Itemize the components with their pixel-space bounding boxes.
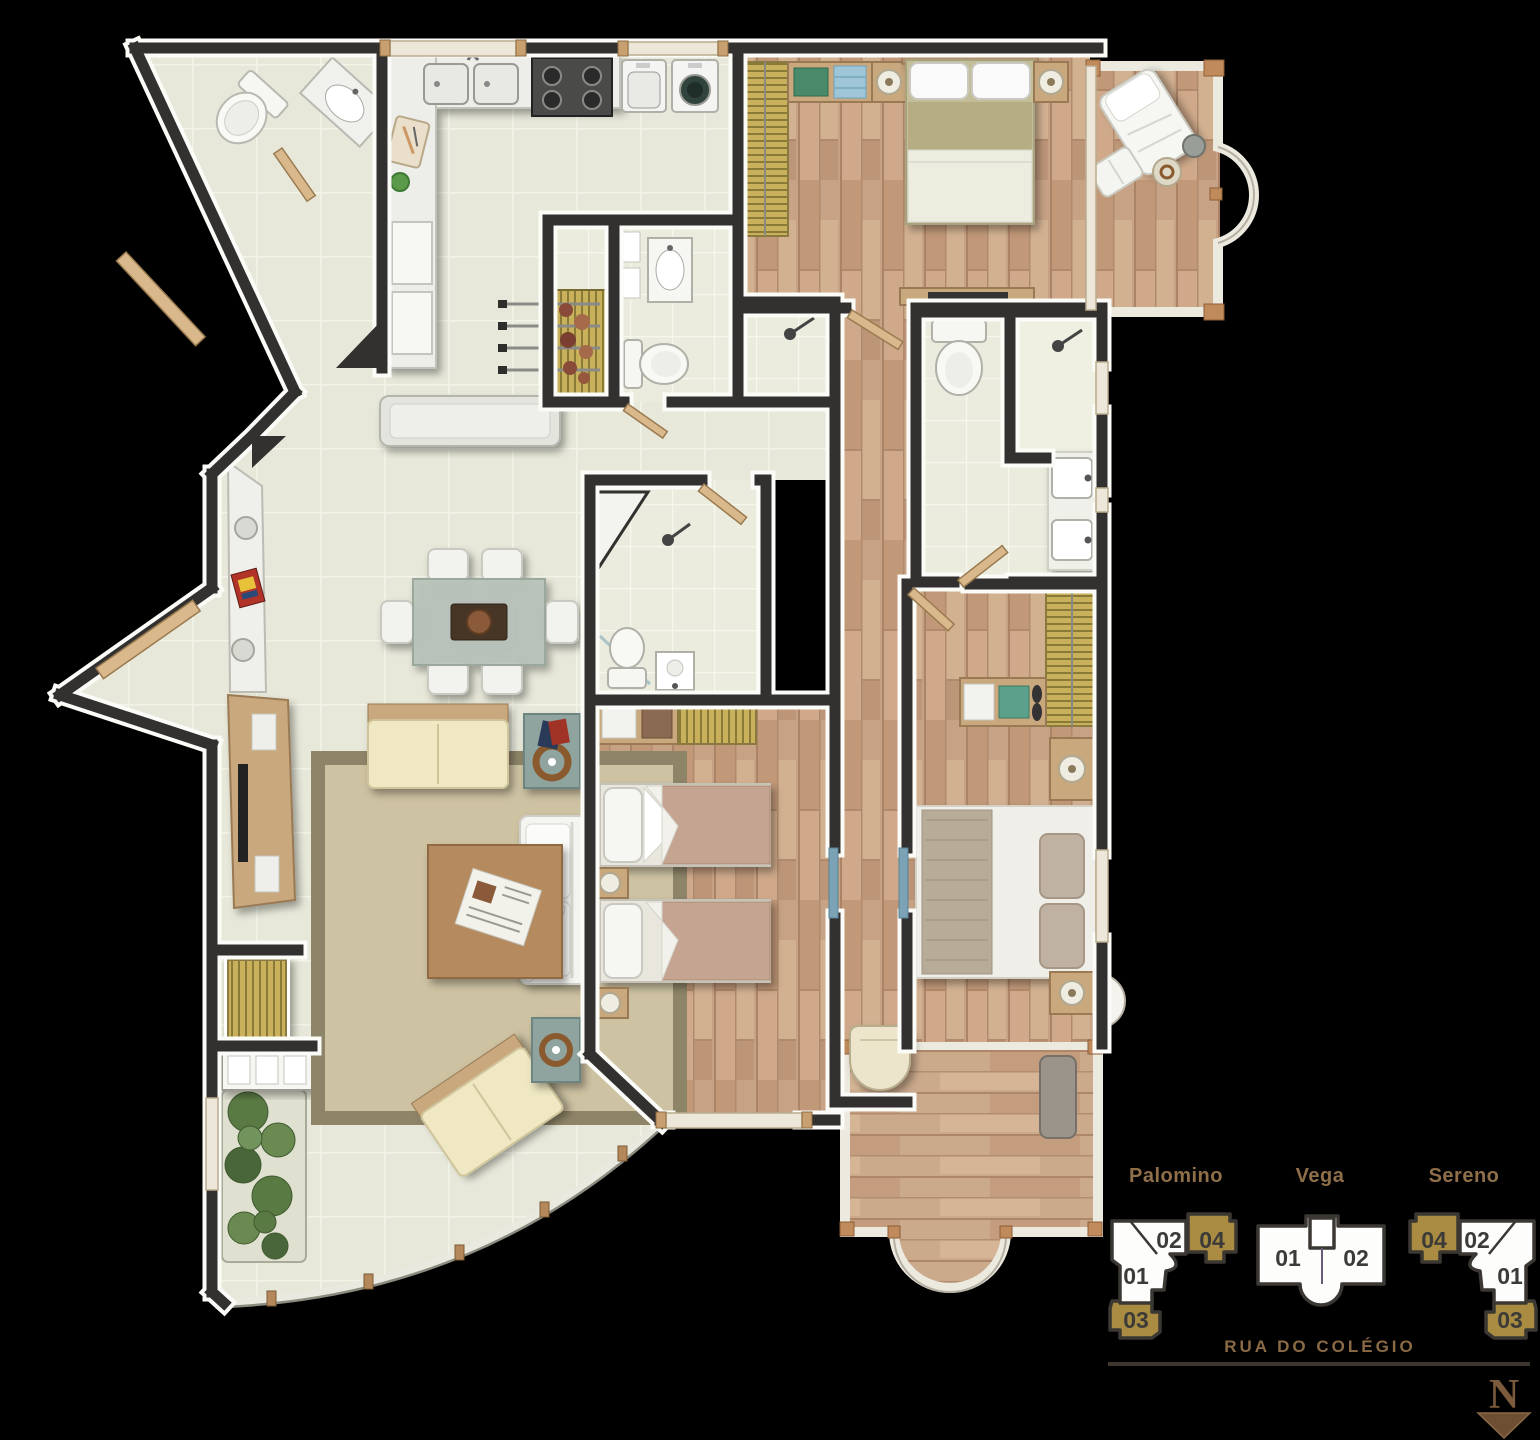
bedroom2-sliding-door bbox=[829, 848, 838, 918]
service-toilet bbox=[624, 340, 688, 388]
bath2-toilet bbox=[608, 628, 646, 688]
kitchen-cabinet-1 bbox=[392, 222, 432, 284]
palomino-unit03-label: 03 bbox=[1123, 1307, 1149, 1333]
mbath-window-1 bbox=[1096, 362, 1108, 414]
mbath-sinks bbox=[1048, 452, 1100, 570]
sereno-unit02-label: 02 bbox=[1464, 1227, 1490, 1253]
bedroom3-sliding-door bbox=[899, 848, 908, 918]
palomino-unit02-label: 02 bbox=[1156, 1227, 1182, 1253]
cream-sofa-top bbox=[368, 704, 508, 788]
street-label: RUA DO COLÉGIO bbox=[1224, 1337, 1416, 1356]
sconce-1 bbox=[235, 517, 257, 539]
building-title-palomino: Palomino bbox=[1129, 1165, 1223, 1187]
stove bbox=[532, 58, 612, 116]
sereno-unit01-label: 01 bbox=[1497, 1263, 1523, 1289]
service-entry-door bbox=[116, 252, 205, 346]
fruit-bowl bbox=[467, 610, 491, 634]
vega-unit02-label: 02 bbox=[1343, 1245, 1369, 1271]
master-bed bbox=[902, 56, 1038, 224]
wardrobe-shelf bbox=[788, 62, 872, 102]
hall-sideboard bbox=[380, 396, 560, 446]
building-title-vega: Vega bbox=[1296, 1165, 1345, 1187]
bedroom3-bed bbox=[916, 806, 1096, 978]
vega-core bbox=[1310, 1218, 1334, 1248]
laundry-window bbox=[628, 42, 718, 55]
single-bed-1 bbox=[600, 784, 770, 866]
legend: Palomino Vega Sereno 02 04 01 03 01 02 bbox=[1108, 1165, 1536, 1438]
service-washbasin bbox=[648, 238, 692, 302]
balcony-sliding-door bbox=[1086, 66, 1096, 310]
floorplan-page: Palomino Vega Sereno 02 04 01 03 01 02 bbox=[0, 0, 1540, 1440]
mbath-shower bbox=[1014, 318, 1098, 456]
bath2-washbasin bbox=[656, 652, 694, 690]
compass-letter: N bbox=[1489, 1372, 1519, 1418]
lettuce bbox=[391, 173, 409, 191]
sereno-unit04-label: 04 bbox=[1421, 1227, 1447, 1253]
bedroom3-nightstand-top bbox=[1050, 738, 1094, 800]
nightstand-right bbox=[1034, 62, 1068, 102]
mbath-toilet bbox=[932, 320, 986, 395]
kitchen-window bbox=[390, 41, 516, 56]
vega-unit01-label: 01 bbox=[1275, 1245, 1301, 1271]
floorplan-svg: Palomino Vega Sereno 02 04 01 03 01 02 bbox=[0, 0, 1540, 1440]
mbath-window-2 bbox=[1096, 488, 1108, 512]
palomino-unit04-label: 04 bbox=[1199, 1227, 1225, 1253]
palomino-unit01-label: 01 bbox=[1123, 1263, 1149, 1289]
kitchen-cabinet-2 bbox=[392, 292, 432, 354]
balcony-plant bbox=[1183, 135, 1205, 157]
planter bbox=[222, 1090, 306, 1262]
nightstand-left bbox=[872, 62, 906, 102]
bedroom2-window bbox=[666, 1113, 802, 1128]
dryer bbox=[672, 60, 718, 112]
sereno-unit03-label: 03 bbox=[1497, 1307, 1523, 1333]
tv-cabinet bbox=[228, 695, 295, 908]
wall-console bbox=[228, 462, 266, 692]
sconce-2 bbox=[232, 639, 254, 661]
side-table-2 bbox=[532, 1018, 580, 1082]
bedroom3-nightstand-bottom bbox=[1050, 972, 1094, 1014]
side-table-1 bbox=[524, 714, 580, 788]
north-arrow-icon: N bbox=[1478, 1372, 1530, 1438]
balcony-side-table bbox=[1153, 158, 1181, 186]
balcony3-bench bbox=[1040, 1056, 1076, 1138]
terrace-window bbox=[206, 1098, 218, 1190]
single-bed-2 bbox=[600, 900, 770, 982]
washer bbox=[622, 60, 666, 112]
drawer-unit bbox=[222, 1050, 312, 1090]
slat-cabinet bbox=[224, 956, 290, 1042]
coffee-table bbox=[428, 845, 562, 978]
building-title-sereno: Sereno bbox=[1429, 1165, 1500, 1187]
bedroom3-shelf bbox=[960, 678, 1046, 726]
bedroom3-window bbox=[1096, 850, 1108, 942]
tv-screen bbox=[238, 764, 248, 862]
